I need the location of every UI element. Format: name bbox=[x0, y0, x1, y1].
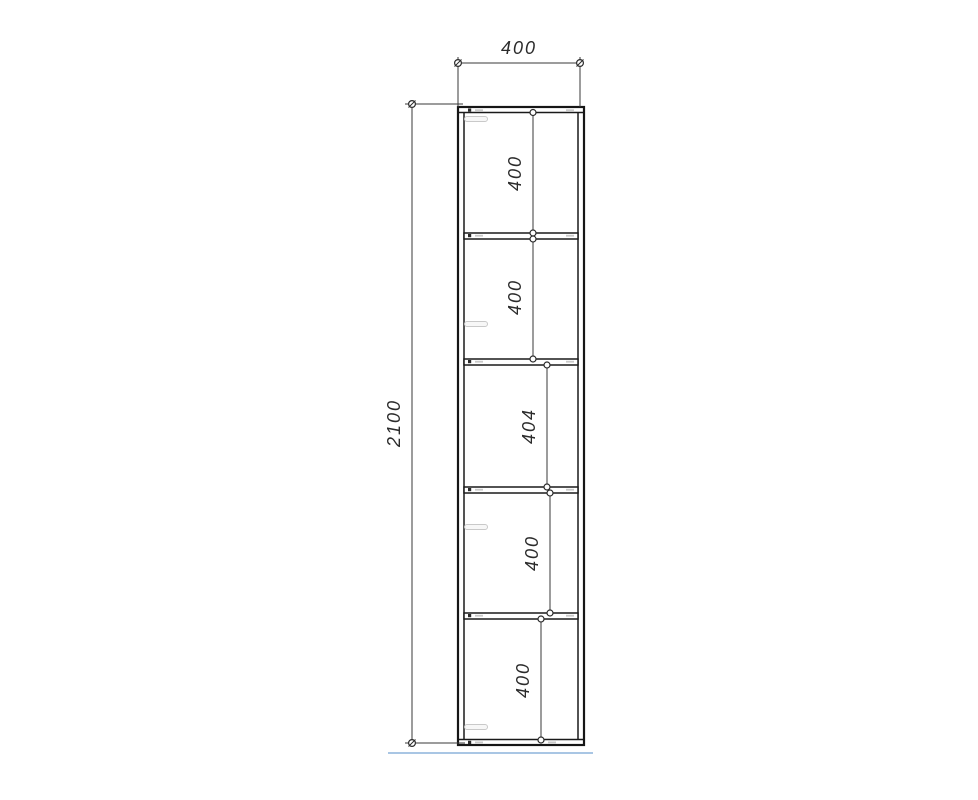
fastener-gray-tick bbox=[475, 109, 483, 111]
compartment-5-label: 400 bbox=[513, 662, 533, 698]
dimension-overall-width: 400 bbox=[455, 38, 584, 107]
drawing-canvas: 400 2100 400 400 404 400 bbox=[0, 0, 978, 800]
dimension-compartment-3: 404 bbox=[519, 362, 550, 490]
fastener-gray-tick bbox=[475, 489, 483, 491]
fastener-gray-tick bbox=[475, 235, 483, 237]
dimension-dot bbox=[547, 610, 553, 616]
fastener-gray-tick bbox=[566, 235, 574, 237]
dimension-overall-height: 2100 bbox=[384, 101, 465, 747]
dimension-compartment-5: 400 bbox=[513, 616, 544, 743]
dimension-compartment-2: 400 bbox=[505, 236, 536, 362]
fastener-gray-tick bbox=[475, 615, 483, 617]
hinge-mark-1 bbox=[465, 117, 488, 122]
fastener-gray-tick bbox=[566, 615, 574, 617]
compartment-3-label: 404 bbox=[519, 408, 539, 444]
dimension-dot bbox=[544, 362, 550, 368]
dimension-dot bbox=[530, 356, 536, 362]
dimension-dot bbox=[530, 110, 536, 116]
fastener-gray-tick bbox=[475, 742, 483, 744]
dimension-dot bbox=[547, 490, 553, 496]
fastener-dark-tick bbox=[468, 488, 471, 491]
hinge-mark-4 bbox=[465, 725, 488, 730]
hinge-mark-2 bbox=[465, 322, 488, 327]
fastener-dark-tick bbox=[468, 109, 471, 112]
compartment-2-label: 400 bbox=[505, 279, 525, 315]
compartment-1-label: 400 bbox=[505, 155, 525, 191]
hinge-mark-3 bbox=[465, 525, 488, 530]
fastener-gray-tick bbox=[475, 361, 483, 363]
compartment-4-label: 400 bbox=[522, 535, 542, 571]
dimension-dot bbox=[538, 616, 544, 622]
fastener-gray-tick bbox=[566, 109, 574, 111]
dimension-compartment-1: 400 bbox=[505, 110, 536, 237]
dimension-dot bbox=[538, 737, 544, 743]
fastener-dark-tick bbox=[468, 360, 471, 363]
fastener-gray-tick bbox=[548, 742, 556, 744]
dimension-dot bbox=[530, 236, 536, 242]
fastener-gray-tick bbox=[566, 361, 574, 363]
dimension-dot bbox=[544, 484, 550, 490]
fastener-dark-tick bbox=[468, 614, 471, 617]
fastener-dark-tick bbox=[468, 234, 471, 237]
fastener-dark-tick bbox=[468, 741, 471, 744]
fastener-gray-tick bbox=[566, 489, 574, 491]
cabinet-technical-drawing: 400 2100 400 400 404 400 bbox=[0, 0, 978, 800]
overall-width-label: 400 bbox=[501, 38, 537, 58]
dimension-compartment-4: 400 bbox=[522, 490, 553, 616]
overall-height-label: 2100 bbox=[384, 399, 404, 448]
dimension-dot bbox=[530, 230, 536, 236]
